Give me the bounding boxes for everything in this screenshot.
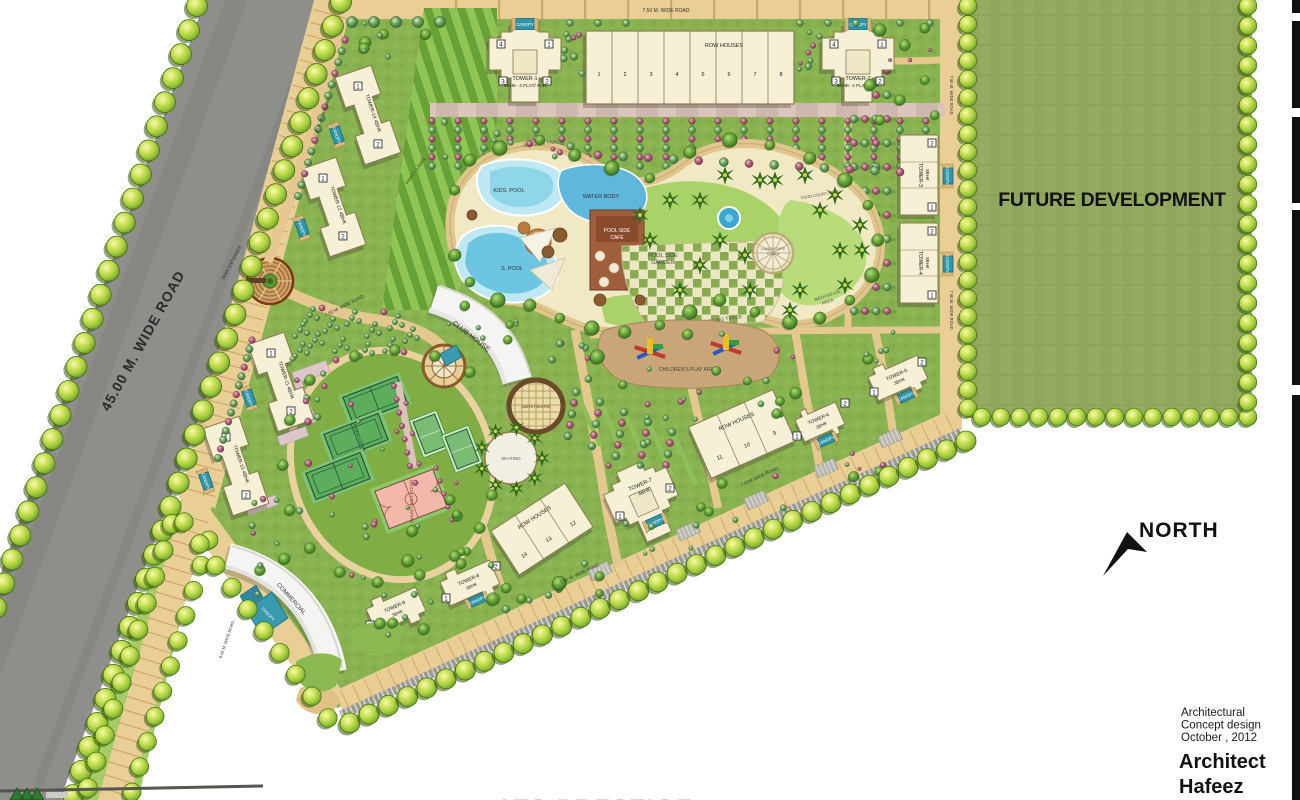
svg-text:NORTH: NORTH	[1139, 519, 1219, 542]
svg-text:4: 4	[675, 72, 678, 78]
svg-text:CHILDREN'S PLAY AREA: CHILDREN'S PLAY AREA	[659, 367, 718, 373]
svg-text:2: 2	[843, 401, 847, 408]
svg-text:AMPHITHEATRE: AMPHITHEATRE	[521, 405, 551, 409]
svg-text:1: 1	[356, 84, 360, 91]
svg-text:2: 2	[930, 229, 934, 236]
svg-text:2: 2	[244, 492, 248, 499]
svg-text:SKATING: SKATING	[501, 456, 521, 461]
svg-text:TOWER-4: TOWER-4	[917, 251, 923, 275]
svg-text:S. POOL: S. POOL	[501, 266, 523, 272]
svg-text:Architect: Architect	[1179, 751, 1266, 773]
svg-text:2: 2	[623, 72, 626, 78]
svg-text:1: 1	[321, 176, 325, 183]
svg-text:2: 2	[494, 564, 498, 571]
svg-text:FUTURE DEVELOPMENT: FUTURE DEVELOPMENT	[998, 189, 1226, 211]
svg-text:Architectural: Architectural	[1181, 707, 1245, 719]
svg-text:3BHK: 3BHK	[925, 257, 930, 270]
svg-text:CANOPY: CANOPY	[516, 22, 534, 27]
svg-text:WATER BODY: WATER BODY	[583, 194, 620, 200]
svg-text:7: 7	[753, 72, 756, 78]
svg-text:2: 2	[930, 141, 934, 148]
svg-text:Hafeez: Hafeez	[1179, 776, 1243, 798]
svg-text:TOWER-1: TOWER-1	[512, 76, 537, 82]
svg-text:GARDEN: GARDEN	[651, 260, 675, 266]
svg-text:2: 2	[668, 486, 672, 493]
svg-text:CANOPY: CANOPY	[945, 167, 950, 185]
svg-text:3: 3	[649, 72, 652, 78]
svg-text:1: 1	[547, 42, 551, 49]
svg-text:2: 2	[920, 360, 924, 367]
svg-text:1: 1	[269, 351, 273, 358]
svg-text:1: 1	[795, 434, 799, 441]
svg-text:8: 8	[779, 72, 782, 78]
svg-text:4: 4	[832, 42, 836, 49]
svg-text:2: 2	[376, 141, 380, 148]
svg-text:BASKET BALL COURT: BASKET BALL COURT	[409, 479, 415, 523]
svg-text:7.50 M. WIDE ROAD: 7.50 M. WIDE ROAD	[949, 290, 954, 329]
svg-text:Concept design: Concept design	[1181, 720, 1261, 732]
svg-text:1: 1	[872, 390, 876, 397]
svg-text:CAFE: CAFE	[610, 235, 624, 241]
svg-text:6: 6	[727, 72, 730, 78]
svg-text:3BHK- 4 FLAT/ FLR: 3BHK- 4 FLAT/ FLR	[504, 83, 547, 89]
svg-text:KIDS. POOL: KIDS. POOL	[493, 188, 524, 194]
svg-text:5: 5	[701, 72, 704, 78]
svg-text:PLAZA: PLAZA	[767, 251, 780, 256]
svg-text:ROW HOUSES: ROW HOUSES	[705, 43, 744, 49]
svg-text:1: 1	[597, 72, 600, 78]
svg-text:1: 1	[618, 514, 622, 521]
svg-text:ATS PRESTIGE: ATS PRESTIGE	[496, 795, 694, 800]
svg-text:1: 1	[880, 42, 884, 49]
svg-text:1: 1	[930, 205, 934, 212]
svg-text:CANOPY: CANOPY	[945, 255, 950, 273]
svg-text:7.50 M. WIDE ROAD: 7.50 M. WIDE ROAD	[643, 8, 690, 14]
svg-text:2: 2	[341, 233, 345, 240]
svg-text:1: 1	[930, 293, 934, 300]
svg-text:POOL SIDE: POOL SIDE	[648, 253, 678, 259]
svg-text:3BHK: 3BHK	[925, 169, 930, 182]
svg-text:4: 4	[499, 42, 503, 49]
svg-text:1: 1	[444, 596, 448, 603]
svg-text:October , 2012: October , 2012	[1181, 732, 1257, 744]
svg-text:TOWER-3: TOWER-3	[917, 163, 923, 187]
svg-text:7.50 M. WIDE ROAD: 7.50 M. WIDE ROAD	[949, 75, 954, 114]
svg-text:POOL SIDE: POOL SIDE	[604, 228, 631, 234]
